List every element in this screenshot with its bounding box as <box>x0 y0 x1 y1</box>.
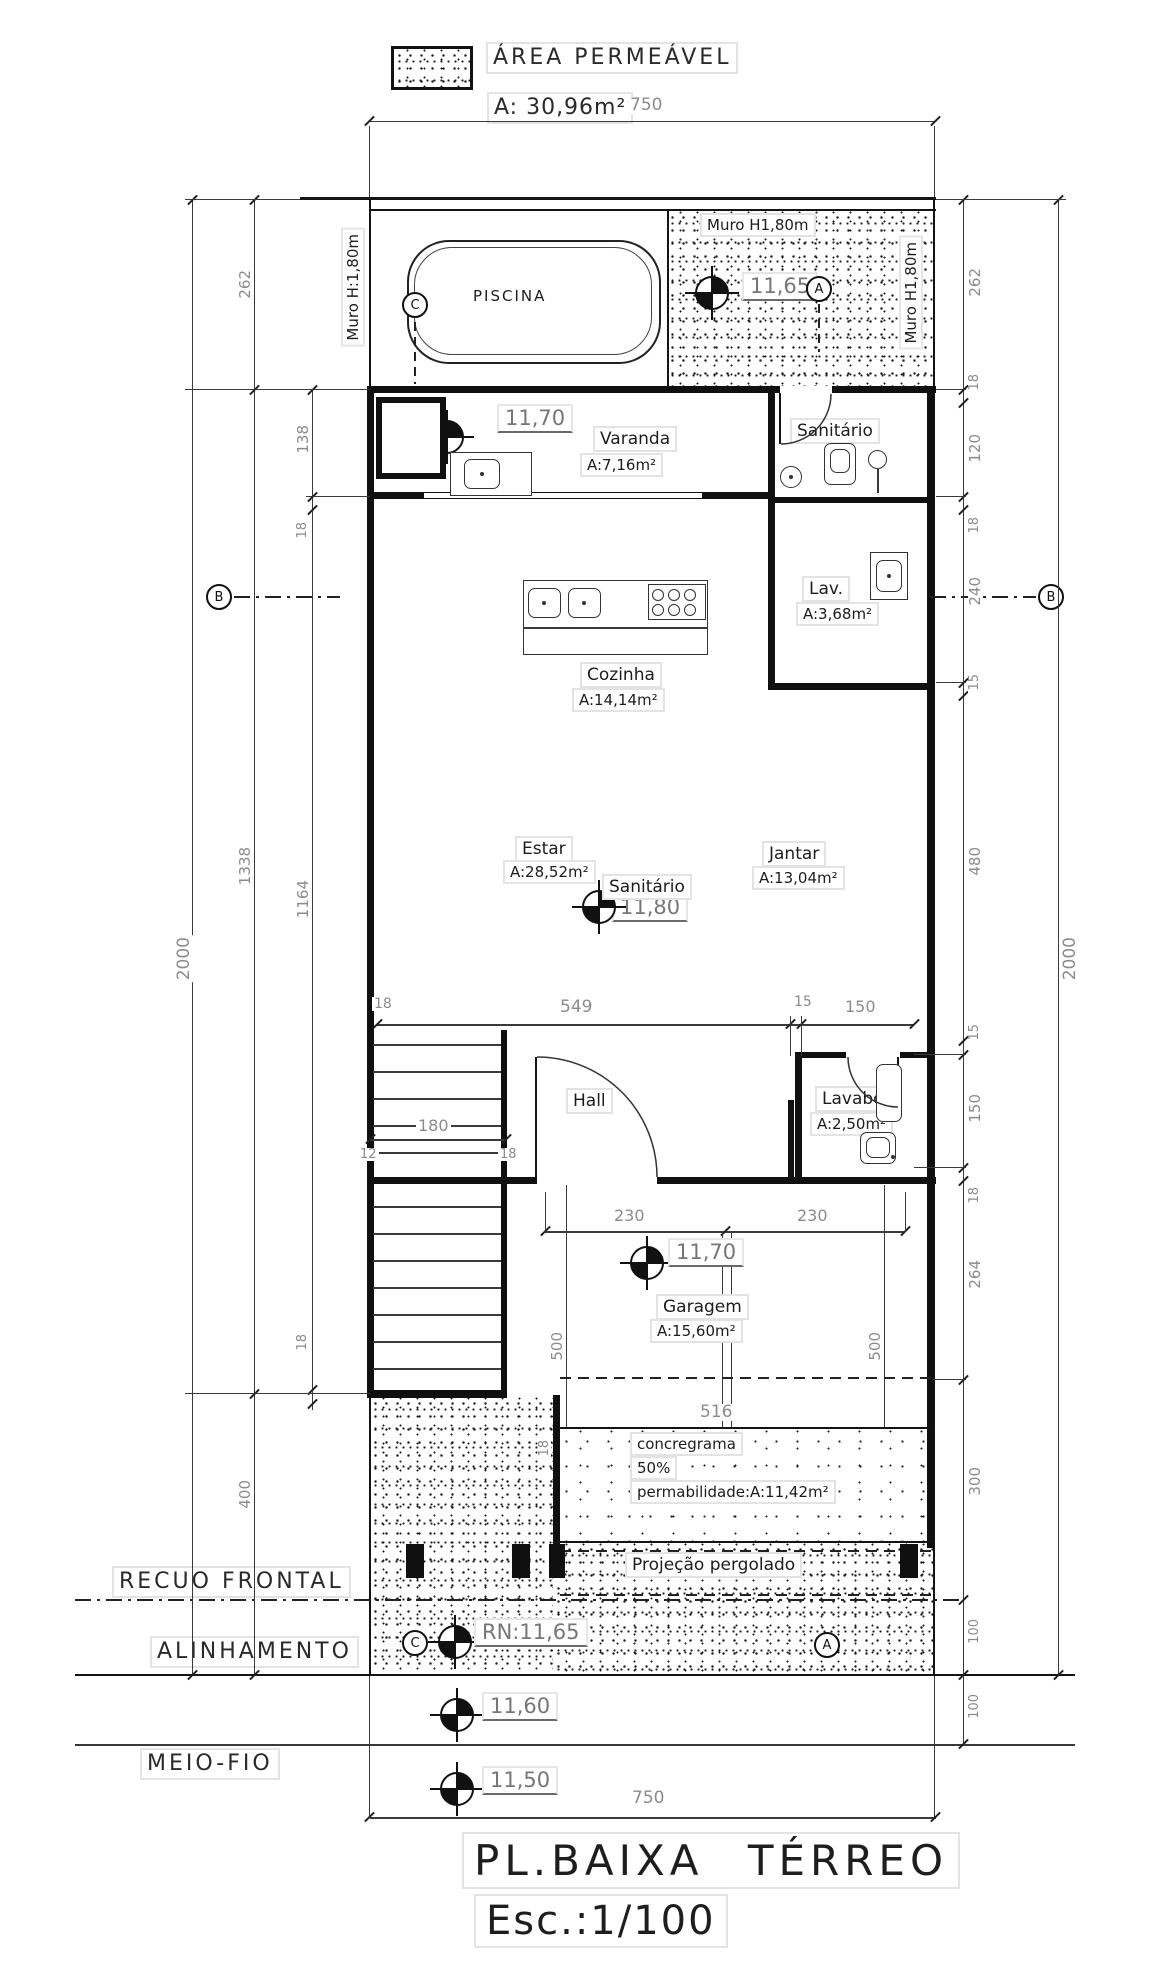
floor-plan-drawing: ÁREA PERMEÁVEL A: 30,96m² 750 PISCINA C … <box>0 0 1170 1974</box>
door-arcs-layer <box>0 0 1170 1974</box>
